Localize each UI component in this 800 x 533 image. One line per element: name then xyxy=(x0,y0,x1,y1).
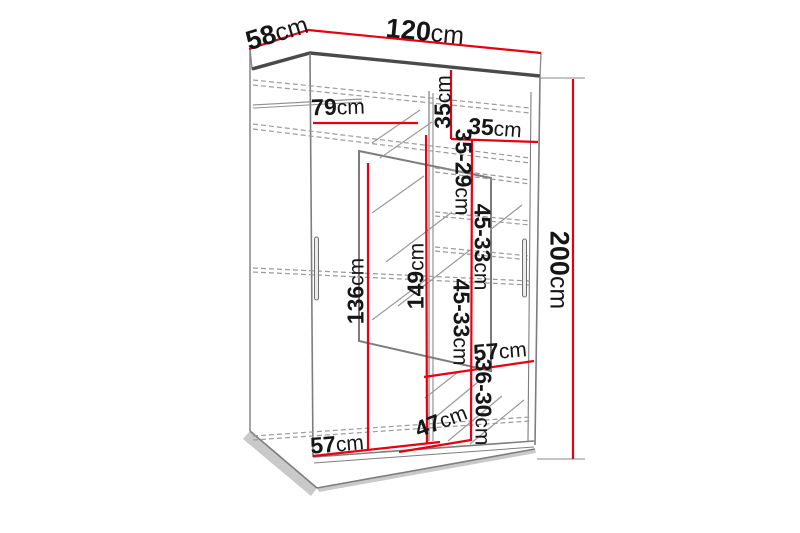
dim-label-45-33cm-lower: 45-33cm xyxy=(450,279,473,366)
dim-label-35cm-vertical: 35cm xyxy=(432,75,455,129)
dim-label-57cm-bottom: 57cm xyxy=(309,430,364,458)
dim-label-149cm: 149cm xyxy=(405,243,428,309)
wardrobe-line-drawing xyxy=(0,0,800,533)
right-door-handle xyxy=(523,239,527,297)
dim-label-57cm-mid: 57cm xyxy=(472,337,527,365)
left-door-handle xyxy=(315,237,319,300)
wardrobe-dimension-diagram: 58cm 120cm 79cm 35cm 35cm 35-29cm 45-33c… xyxy=(0,0,800,533)
door-partition-edges xyxy=(429,91,433,441)
dim-label-200cm: 200cm xyxy=(546,231,573,309)
dim-label-79cm: 79cm xyxy=(311,95,365,120)
dim-label-35-29cm: 35-29cm xyxy=(452,129,475,216)
dim-label-45-33cm-upper: 45-33cm xyxy=(471,204,494,291)
dim-label-36-30cm: 36-30cm xyxy=(472,359,495,446)
dim-label-136cm: 136cm xyxy=(345,258,368,324)
